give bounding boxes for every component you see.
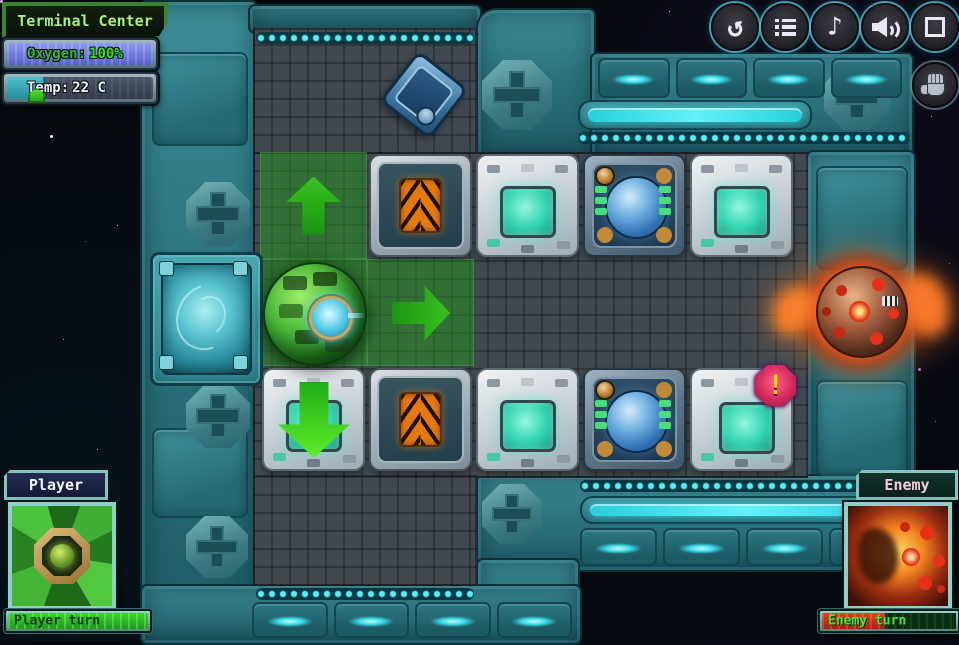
enemy-turn-label: Enemy turn — [828, 614, 906, 629]
oxygen-gauge: Oxygen: 100% — [2, 38, 158, 70]
portal-swirl-icon — [165, 273, 250, 361]
conveyor-belt-icon — [399, 392, 442, 447]
oxygen-label: Oxygen: — [27, 46, 86, 62]
orb-machine-tile[interactable] — [583, 368, 686, 471]
machine-screen-tile[interactable] — [690, 154, 793, 257]
sphere-core-icon — [309, 296, 353, 340]
machine-greebles — [273, 379, 286, 387]
player-turn-label: Player turn — [14, 614, 100, 629]
sound-button[interactable] — [861, 3, 909, 51]
level-title: Terminal Center — [2, 2, 168, 40]
crate-device[interactable] — [379, 50, 469, 140]
enemy-fireball-unit — [800, 254, 920, 370]
machine-screen-icon — [714, 186, 770, 238]
enemy-avatar — [844, 502, 952, 610]
conveyor-belt-icon — [399, 178, 442, 233]
enemy-avatar-shadow — [858, 528, 898, 584]
machine-greebles — [487, 165, 500, 173]
hand-icon — [927, 81, 944, 95]
orb-machine-tile[interactable] — [583, 154, 686, 257]
machine-alert-tile[interactable]: ! — [690, 368, 793, 471]
fullscreen-icon — [925, 17, 945, 37]
menu-button[interactable] — [761, 3, 809, 51]
enemy-turn-bar: Enemy turn — [818, 609, 959, 633]
fireball-lights — [849, 301, 870, 322]
music-button[interactable]: ♪ — [811, 3, 859, 51]
fullscreen-button[interactable] — [911, 3, 959, 51]
music-note-icon: ♪ — [827, 14, 843, 40]
player-avatar — [8, 502, 116, 610]
machine-screen-tile[interactable] — [476, 368, 579, 471]
sphere-greebles — [283, 276, 307, 290]
fireball-stripe — [882, 296, 898, 306]
orb-bolts — [597, 168, 613, 184]
player-panel-title: Player — [4, 470, 108, 500]
machine-greebles — [701, 165, 714, 173]
restart-icon: ↺ — [725, 12, 746, 41]
player-avatar-core — [50, 544, 74, 568]
orb-core-icon — [605, 176, 668, 239]
orb-bolts — [597, 382, 613, 398]
enemy-avatar-lights — [902, 548, 920, 566]
conveyor-tile[interactable] — [369, 154, 472, 257]
menu-list-icon — [775, 19, 796, 36]
machine-greebles — [701, 379, 714, 387]
conveyor-frame — [377, 162, 464, 249]
restart-button[interactable]: ↺ — [711, 3, 759, 51]
alert-icon: ! — [755, 365, 796, 406]
machine-screen-icon — [500, 186, 556, 238]
machine-screen-tile[interactable] — [476, 154, 579, 257]
temperature-value: 22 C — [72, 80, 106, 96]
orb-lights — [659, 400, 671, 407]
player-sphere-unit[interactable] — [263, 262, 367, 366]
machine-screen-icon — [719, 402, 775, 454]
orb-core-icon — [605, 390, 668, 453]
hand-tool-button[interactable] — [912, 62, 958, 108]
portal-tile — [150, 252, 263, 386]
portal-corner-brackets — [160, 262, 173, 275]
conveyor-tile[interactable] — [369, 368, 472, 471]
orb-lights — [659, 186, 671, 193]
conveyor-frame — [377, 376, 464, 463]
enemy-panel-title: Enemy — [856, 470, 958, 500]
machine-greebles — [487, 379, 500, 387]
speaker-icon — [872, 17, 898, 37]
oxygen-value: 100% — [89, 46, 123, 62]
machine-screen-icon — [500, 400, 556, 452]
temperature-gauge: Temp: 22 C — [2, 72, 158, 104]
player-turn-bar: Player turn — [4, 609, 152, 633]
